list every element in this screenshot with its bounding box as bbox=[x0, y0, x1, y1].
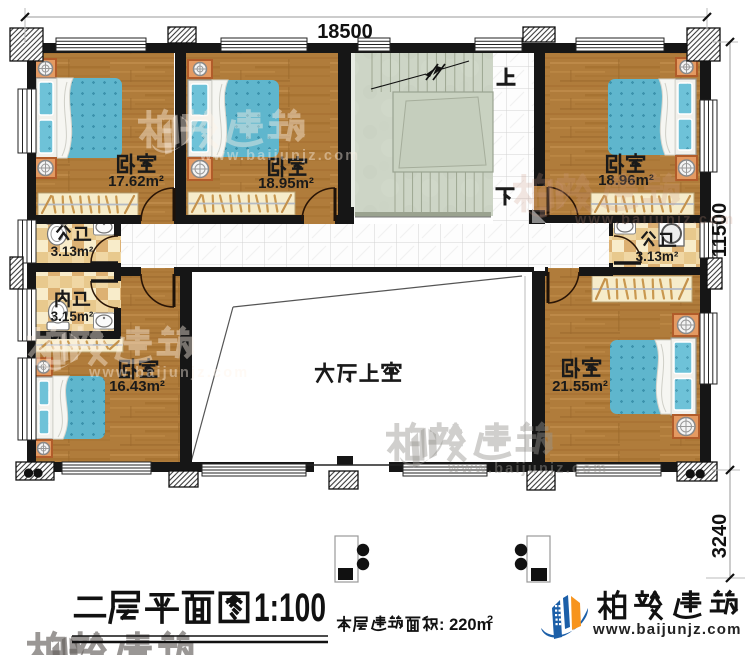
svg-text:21.55m²: 21.55m² bbox=[552, 378, 608, 395]
svg-text:www.baijunjz.com: www.baijunjz.com bbox=[447, 461, 608, 477]
svg-text:11500: 11500 bbox=[709, 203, 731, 258]
svg-text:www.baijunjz.com: www.baijunjz.com bbox=[574, 212, 735, 228]
svg-text:3.13m²: 3.13m² bbox=[636, 249, 679, 264]
svg-text:18.95m²: 18.95m² bbox=[258, 175, 314, 192]
svg-text:www.baijunjz.com: www.baijunjz.com bbox=[88, 365, 249, 381]
svg-text:www.baijunjz.com: www.baijunjz.com bbox=[592, 621, 742, 638]
svg-text:: 220m: : 220m bbox=[439, 616, 491, 634]
svg-text:2: 2 bbox=[487, 614, 493, 626]
svg-text:18500: 18500 bbox=[317, 21, 373, 43]
svg-text:3240: 3240 bbox=[709, 514, 731, 559]
svg-text:3.15m²: 3.15m² bbox=[51, 309, 94, 324]
svg-text:17.62m²: 17.62m² bbox=[108, 173, 164, 190]
svg-text:3.13m²: 3.13m² bbox=[51, 244, 94, 259]
svg-text:1:100: 1:100 bbox=[254, 586, 326, 630]
svg-text:www.baijunjz.com: www.baijunjz.com bbox=[199, 148, 360, 164]
